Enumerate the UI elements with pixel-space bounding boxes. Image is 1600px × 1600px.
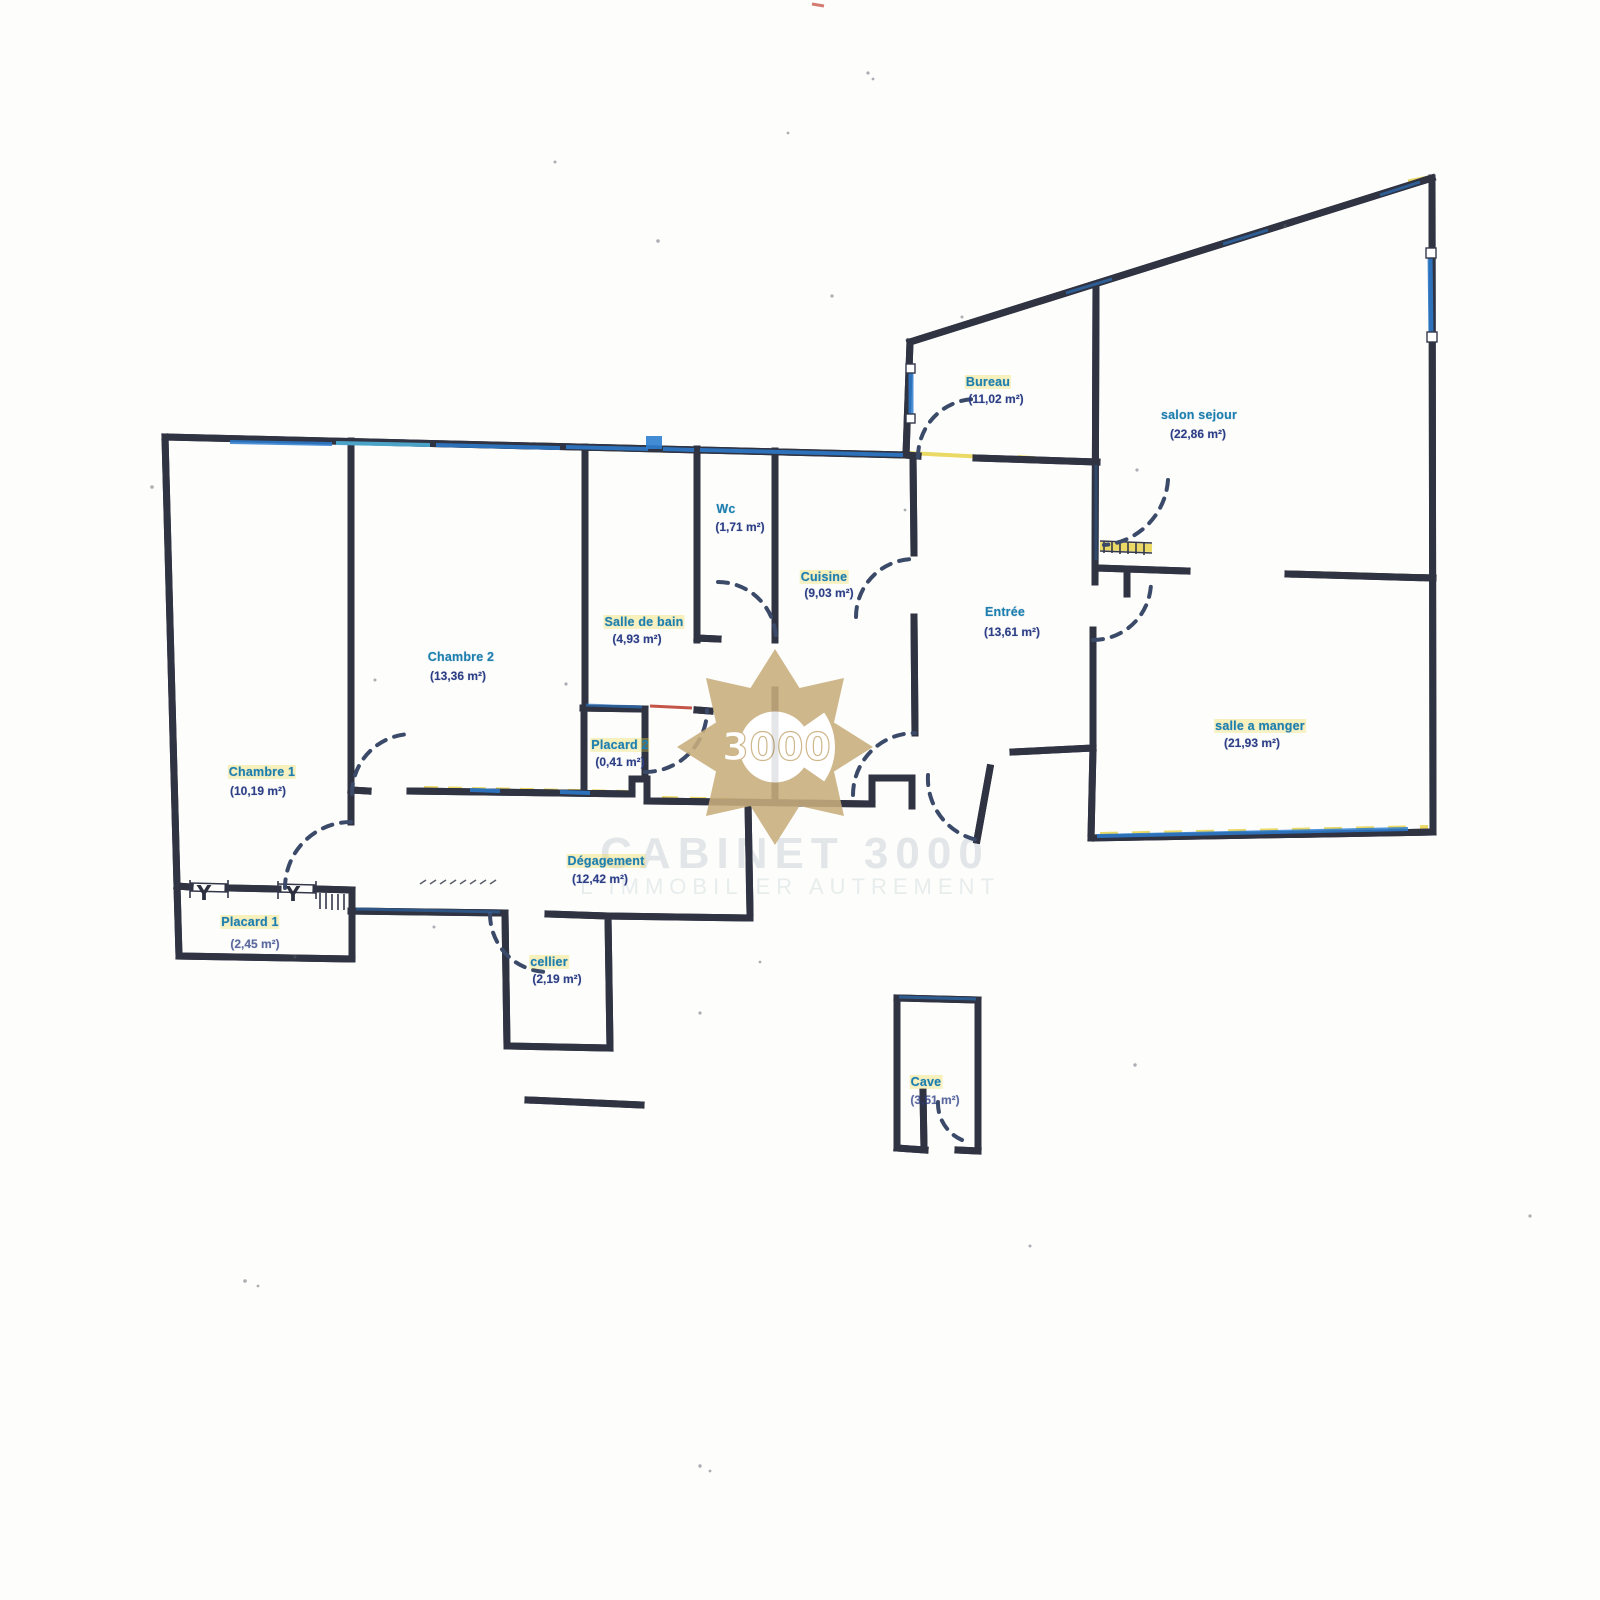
floorplan-drawing: CABINET 3000 L'IMMOBILIER AUTREMENT Y: [0, 0, 1600, 1600]
watermark-line2: L'IMMOBILIER AUTREMENT: [580, 874, 1000, 899]
room-label-salle-a-manger: salle a manger: [1214, 717, 1306, 735]
walls-layer: [165, 178, 1433, 1151]
floorplan-scan: CABINET 3000 L'IMMOBILIER AUTREMENT Y: [0, 0, 1600, 1600]
room-area-placard2: (0,41 m²): [595, 753, 644, 771]
room-label-salon-sejour: salon sejour: [1161, 406, 1237, 424]
room-area-placard1: (2,45 m²): [230, 935, 279, 953]
room-area-cave: (3,51 m²): [910, 1091, 959, 1109]
room-label-placard1: Placard 1: [220, 913, 279, 931]
room-label-degagement: Dégagement: [566, 852, 645, 870]
room-label-wc: Wc: [716, 500, 735, 518]
window-icon: Y: [196, 881, 212, 905]
room-area-salle-a-manger: (21,93 m²): [1224, 734, 1280, 752]
room-area-degagement: (12,42 m²): [572, 870, 628, 888]
watermark-line1: CABINET 3000: [600, 829, 990, 878]
window-marker: [906, 414, 915, 423]
room-area-entree: (13,61 m²): [984, 623, 1040, 641]
window-marker: [1427, 332, 1437, 342]
room-area-bureau: (11,02 m²): [968, 390, 1023, 408]
room-label-placard2: Placard 2: [590, 736, 649, 754]
room-area-chambre2: (13,36 m²): [430, 667, 486, 685]
room-area-cuisine: (9,03 m²): [804, 584, 853, 602]
room-area-wc: (1,71 m²): [715, 518, 764, 536]
room-area-salle-de-bain: (4,93 m²): [612, 630, 661, 648]
room-label-salle-de-bain: Salle de bain: [603, 613, 684, 631]
room-label-cellier: cellier: [529, 953, 569, 971]
room-label-chambre1: Chambre 1: [228, 763, 296, 781]
logo-number: 3000: [722, 725, 832, 769]
wall-inner-line: [165, 178, 1433, 1151]
window-marker: [1426, 248, 1436, 258]
window-icon: Y: [285, 882, 301, 906]
room-area-salon-sejour: (22,86 m²): [1170, 425, 1226, 443]
room-label-cave: Cave: [910, 1073, 943, 1091]
room-area-cellier: (2,19 m²): [532, 970, 581, 988]
agency-sun-logo: 3000: [677, 649, 873, 845]
room-area-chambre1: (10,19 m²): [230, 782, 286, 800]
room-label-chambre2: Chambre 2: [428, 648, 494, 666]
room-label-bureau: Bureau: [965, 373, 1011, 391]
room-label-entree: Entrée: [985, 603, 1025, 621]
window-marker: [646, 436, 662, 449]
window-marker: [906, 364, 915, 373]
